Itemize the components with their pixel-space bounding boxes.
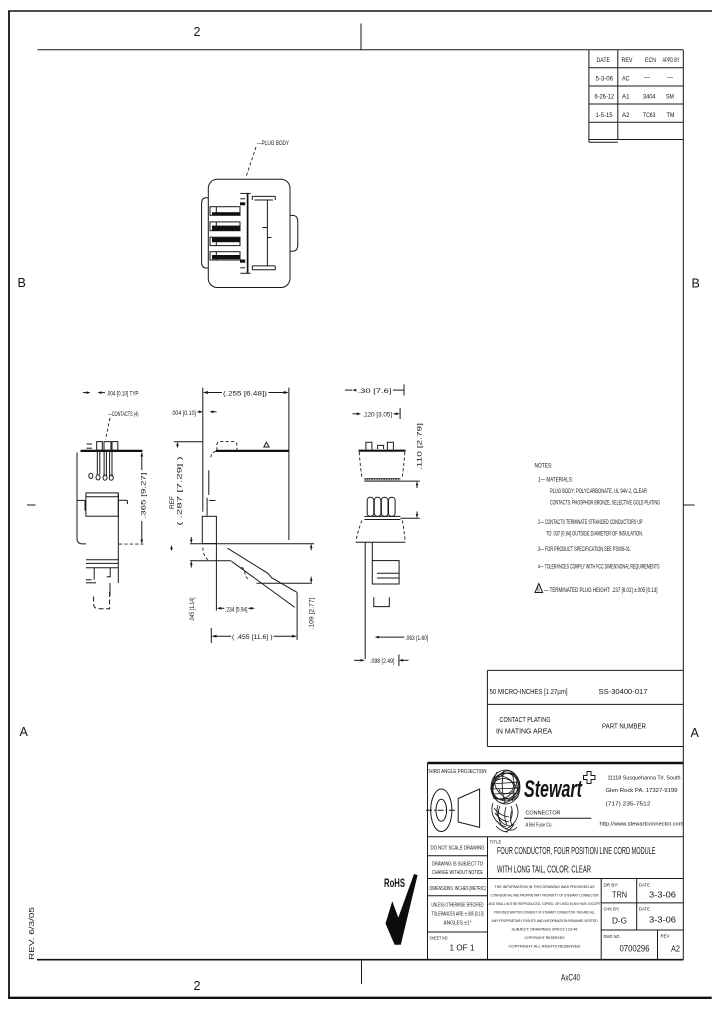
svg-text:–: – bbox=[667, 75, 673, 82]
svg-text:TRN: TRN bbox=[612, 890, 627, 900]
svg-text:IN MATING AREA: IN MATING AREA bbox=[496, 727, 552, 736]
svg-text:.365 [9.27]: .365 [9.27] bbox=[141, 472, 148, 518]
svg-text:COPYRIGHT ALL RIGHTS RESERVED: COPYRIGHT ALL RIGHTS RESERVED bbox=[509, 944, 581, 949]
svg-text:2— CONTACTS TERMINATE STRANDED: 2— CONTACTS TERMINATE STRANDED CONDUCTOR… bbox=[538, 519, 643, 526]
svg-text:.30 [7.6]: .30 [7.6] bbox=[358, 388, 392, 395]
svg-text:THIRD ANGLE PROJECTION: THIRD ANGLE PROJECTION bbox=[427, 769, 487, 775]
svg-text:.004 [0.10] TYP: .004 [0.10] TYP bbox=[107, 390, 139, 397]
svg-text:AND SHALL NOT BE REPRODUCED, C: AND SHALL NOT BE REPRODUCED, COPIED, OR … bbox=[489, 901, 601, 906]
svg-text:D-G: D-G bbox=[612, 916, 627, 926]
svg-text:PROVIDED WRITTEN CONSENT OF ST: PROVIDED WRITTEN CONSENT OF STEWART CONN… bbox=[494, 910, 596, 915]
svg-text:AC: AC bbox=[622, 76, 630, 83]
svg-text:SUBJECT: DRAWINGS SPECS 123-45: SUBJECT: DRAWINGS SPECS 123-45 bbox=[512, 927, 579, 932]
svg-text:2: 2 bbox=[194, 979, 201, 993]
svg-text:DATE: DATE bbox=[597, 57, 611, 64]
svg-text:— TERMINATED PLUG HEIGHT: .23: — TERMINATED PLUG HEIGHT: .237 [6.02] ±.… bbox=[544, 587, 658, 594]
svg-text:DO NOT SCALE DRAWING: DO NOT SCALE DRAWING bbox=[431, 846, 485, 852]
svg-text:DRAWING IS SUBJECT TO: DRAWING IS SUBJECT TO bbox=[432, 862, 483, 868]
svg-text:REV: REV bbox=[622, 57, 634, 64]
svg-text:DATE: DATE bbox=[639, 883, 650, 888]
svg-text:50 MICRO-INCHES [1.27µm]: 50 MICRO-INCHES [1.27µm] bbox=[490, 687, 568, 696]
svg-text:CONNECTOR: CONNECTOR bbox=[526, 811, 561, 817]
svg-text:ANY PROPRIETARY RIGHTS AND INF: ANY PROPRIETARY RIGHTS AND INFORMATION R… bbox=[492, 918, 598, 923]
svg-text:–: – bbox=[644, 75, 650, 82]
svg-text:(.255 [6.48]): (.255 [6.48]) bbox=[223, 390, 267, 397]
svg-text:( .287 [7.29] ): ( .287 [7.29] ) bbox=[177, 457, 184, 526]
svg-text:ECN: ECN bbox=[645, 57, 656, 64]
svg-text:CHK BY:: CHK BY: bbox=[604, 907, 620, 912]
svg-text:.045 [1.14]: .045 [1.14] bbox=[189, 597, 196, 621]
svg-text:A Bel Fuse Co.: A Bel Fuse Co. bbox=[526, 823, 553, 829]
svg-text:.063 [1.60]: .063 [1.60] bbox=[405, 635, 428, 642]
svg-text:FOUR CONDUCTOR, FOUR POSITION: FOUR CONDUCTOR, FOUR POSITION LINE CORD … bbox=[497, 845, 656, 857]
svg-text:RoHS: RoHS bbox=[384, 878, 405, 890]
svg-text:SS-30400-017: SS-30400-017 bbox=[599, 687, 648, 696]
svg-text:( .455 [11.6] ): ( .455 [11.6] ) bbox=[232, 634, 273, 641]
svg-text:11118 Susquehanna Trl. South: 11118 Susquehanna Trl. South bbox=[608, 776, 681, 782]
svg-text:APPD BY: APPD BY bbox=[663, 57, 680, 64]
svg-text:AxC40: AxC40 bbox=[561, 973, 580, 983]
svg-text:—CONTACTS (4): —CONTACTS (4) bbox=[108, 411, 139, 418]
svg-text:TC63: TC63 bbox=[643, 112, 656, 119]
svg-text:.120 [3.05]: .120 [3.05] bbox=[363, 412, 393, 419]
svg-text:UNLESS OTHERWISE SPECIFIED: UNLESS OTHERWISE SPECIFIED bbox=[432, 903, 484, 909]
svg-text:.234 [5.94]: .234 [5.94] bbox=[225, 606, 248, 613]
svg-text:6-26-12: 6-26-12 bbox=[595, 94, 615, 101]
svg-text:5: 5 bbox=[537, 588, 540, 594]
svg-text:0700296: 0700296 bbox=[620, 943, 650, 954]
svg-text:1-5-15: 1-5-15 bbox=[596, 112, 613, 119]
svg-text:(717) 235-7512: (717) 235-7512 bbox=[606, 802, 651, 808]
svg-text:5-3-06: 5-3-06 bbox=[596, 76, 614, 83]
svg-text:REV: REV bbox=[661, 934, 671, 939]
svg-text:3— FOR PRODUCT SPECIFICATION S: 3— FOR PRODUCT SPECIFICATION SEE PS008-0… bbox=[538, 546, 631, 553]
svg-text:B: B bbox=[692, 277, 700, 291]
svg-text:DR BY:: DR BY: bbox=[604, 883, 619, 888]
svg-text:4— TOLERANCES COMPLY WITH FCC: 4— TOLERANCES COMPLY WITH FCC DIMENSIONA… bbox=[538, 563, 660, 570]
svg-text:Glen Rock PA. 17327-9199: Glen Rock PA. 17327-9199 bbox=[606, 788, 678, 794]
svg-text:CHANGE WITHOUT NOTICE: CHANGE WITHOUT NOTICE bbox=[432, 870, 483, 876]
svg-text:1 OF 1: 1 OF 1 bbox=[450, 943, 475, 953]
svg-text:.110 [2.79]: .110 [2.79] bbox=[417, 423, 424, 470]
svg-text:2: 2 bbox=[194, 25, 201, 39]
svg-text:A2: A2 bbox=[622, 112, 630, 119]
svg-text:A: A bbox=[20, 725, 29, 739]
svg-text:DWG NO.: DWG NO. bbox=[604, 934, 621, 939]
svg-text:COPYRIGHT RESERVED: COPYRIGHT RESERVED bbox=[525, 935, 565, 940]
svg-text:SM: SM bbox=[666, 94, 674, 101]
svg-text:CONTACT PLATING: CONTACT PLATING bbox=[500, 715, 551, 724]
svg-text:DATE: DATE bbox=[639, 907, 650, 912]
svg-text:TITLE: TITLE bbox=[490, 840, 502, 845]
svg-text:Stewart: Stewart bbox=[524, 776, 583, 803]
svg-text:A1: A1 bbox=[622, 94, 630, 101]
svg-text:1— MATERIALS:: 1— MATERIALS: bbox=[538, 476, 573, 483]
svg-text:TM: TM bbox=[667, 112, 675, 119]
svg-text:3404: 3404 bbox=[643, 94, 656, 101]
svg-text:TOLERANCES ARE: ±.005 [0.13]: TOLERANCES ARE: ±.005 [0.13] bbox=[432, 912, 484, 918]
svg-text:3-3-06: 3-3-06 bbox=[649, 890, 676, 900]
svg-text:SHEET NO.: SHEET NO. bbox=[430, 936, 449, 941]
svg-text:REV. 6/3/05: REV. 6/3/05 bbox=[27, 907, 36, 960]
svg-text:.109 [2.77]: .109 [2.77] bbox=[309, 597, 316, 629]
svg-text:CONTACTS: PHOSPHOR BRONZE, SE: CONTACTS: PHOSPHOR BRONZE, SELECTIVE GOL… bbox=[550, 500, 660, 507]
svg-text:CONFIDENTIAL AND PROPRIETARY P: CONFIDENTIAL AND PROPRIETARY PROPERTY OF… bbox=[491, 893, 599, 898]
svg-text:PART NUMBER: PART NUMBER bbox=[602, 721, 646, 730]
svg-text:—PLUG BODY: —PLUG BODY bbox=[257, 140, 290, 147]
svg-text:A: A bbox=[691, 726, 700, 740]
svg-text:3-3-06: 3-3-06 bbox=[649, 915, 676, 925]
svg-text:NOTES:: NOTES: bbox=[535, 463, 553, 470]
svg-text:THE INFORMATION IN THIS DRAWIN: THE INFORMATION IN THIS DRAWING WAS PROV… bbox=[495, 884, 595, 889]
svg-text:http://www.stewartconnector.co: http://www.stewartconnector.com bbox=[600, 822, 684, 828]
svg-text:A2: A2 bbox=[671, 944, 680, 954]
svg-text:DIMENSIONS: INCHES [METRIC]: DIMENSIONS: INCHES [METRIC] bbox=[430, 886, 486, 892]
svg-text:REF: REF bbox=[170, 496, 176, 509]
svg-text:.098 [2.49]: .098 [2.49] bbox=[370, 658, 395, 665]
svg-text:ANGLES ±1°: ANGLES ±1° bbox=[444, 921, 472, 927]
svg-text:TO .037 [0.94] OUTSIDE DIAMETE: TO .037 [0.94] OUTSIDE DIAMETER OF INSUL… bbox=[546, 530, 643, 537]
svg-text:B: B bbox=[18, 276, 26, 290]
svg-text:PLUG BODY: POLYCARBONATE, UL: PLUG BODY: POLYCARBONATE, UL 94V-2, CLEA… bbox=[550, 488, 647, 495]
svg-text:.004 [0.10]: .004 [0.10] bbox=[171, 410, 196, 417]
svg-text:WITH LONG TAIL, COLOR: CLEAR: WITH LONG TAIL, COLOR: CLEAR bbox=[497, 864, 591, 876]
